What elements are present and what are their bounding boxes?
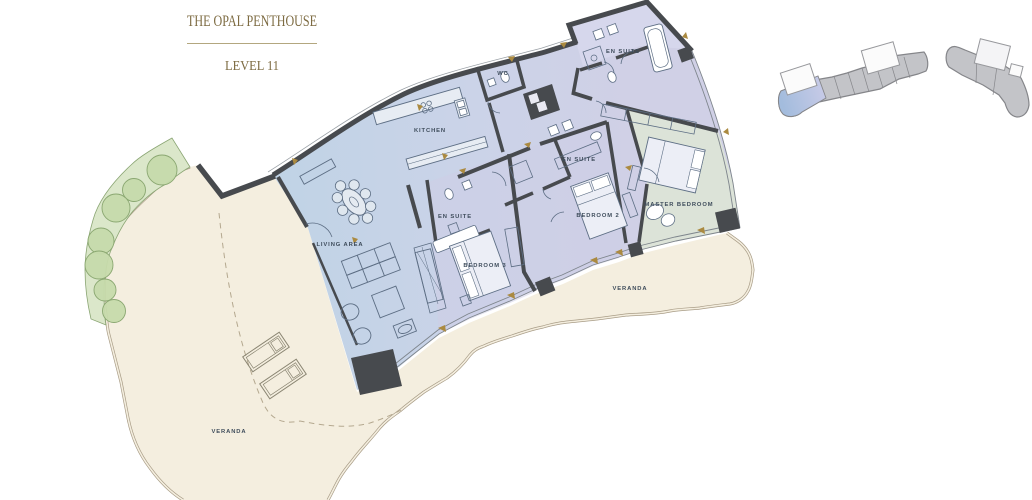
svg-text:LIVING AREA: LIVING AREA — [316, 242, 363, 248]
svg-text:VERANDA: VERANDA — [613, 286, 648, 292]
svg-text:BEDROOM 3: BEDROOM 3 — [463, 263, 506, 269]
svg-text:EN SUITE: EN SUITE — [562, 157, 596, 163]
svg-text:KITCHEN: KITCHEN — [414, 128, 446, 134]
svg-text:WC: WC — [497, 71, 508, 77]
svg-text:MASTER BEDROOM: MASTER BEDROOM — [645, 202, 714, 208]
svg-text:BEDROOM 2: BEDROOM 2 — [576, 213, 619, 219]
svg-text:EN SUITE: EN SUITE — [606, 49, 640, 55]
svg-text:LEVEL 11: LEVEL 11 — [225, 59, 279, 74]
svg-text:VERANDA: VERANDA — [212, 429, 247, 435]
svg-text:THE OPAL PENTHOUSE: THE OPAL PENTHOUSE — [187, 13, 317, 30]
svg-text:EN SUITE: EN SUITE — [438, 214, 472, 220]
